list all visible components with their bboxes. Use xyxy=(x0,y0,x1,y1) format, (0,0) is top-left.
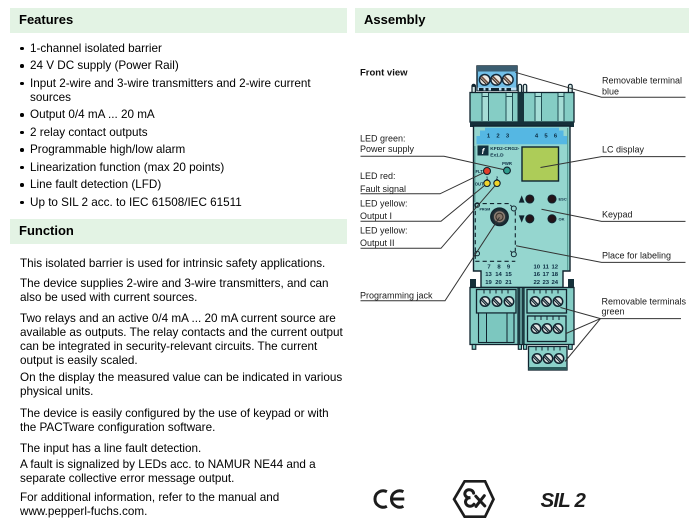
svg-text:LED yellow:: LED yellow: xyxy=(360,225,408,235)
svg-text:LED red:: LED red: xyxy=(360,171,396,181)
svg-text:Front view: Front view xyxy=(360,68,408,79)
svg-text:green: green xyxy=(602,306,625,316)
svg-text:22: 22 xyxy=(534,280,541,286)
svg-text:Place for labeling: Place for labeling xyxy=(602,250,671,260)
svg-text:Removable terminal: Removable terminal xyxy=(602,76,682,86)
svg-text:ESC: ESC xyxy=(559,197,567,202)
svg-text:Output I: Output I xyxy=(360,211,392,221)
svg-text:19: 19 xyxy=(485,280,492,286)
svg-text:Fault signal: Fault signal xyxy=(360,184,406,194)
svg-text:blue: blue xyxy=(602,86,619,96)
svg-text:Removable terminals: Removable terminals xyxy=(602,296,687,306)
svg-text:OK: OK xyxy=(559,216,565,221)
svg-text:LC display: LC display xyxy=(602,145,645,155)
svg-text:LED yellow:: LED yellow: xyxy=(360,199,408,209)
svg-text:20: 20 xyxy=(495,280,502,286)
svg-text:Power supply: Power supply xyxy=(360,144,415,154)
svg-text:OUT: OUT xyxy=(475,181,484,186)
svg-text:24: 24 xyxy=(552,280,559,286)
svg-text:SIL 2: SIL 2 xyxy=(541,489,587,512)
svg-text:PWR: PWR xyxy=(502,161,512,166)
svg-text:12: 12 xyxy=(552,264,559,270)
svg-text:23: 23 xyxy=(543,280,550,286)
svg-text:Ex1.D: Ex1.D xyxy=(490,153,504,159)
svg-text:10: 10 xyxy=(534,264,541,270)
svg-text:15: 15 xyxy=(505,272,512,278)
svg-text:LED green:: LED green: xyxy=(360,134,406,144)
svg-text:PRGM: PRGM xyxy=(480,208,491,212)
svg-text:18: 18 xyxy=(552,272,559,278)
svg-text:17: 17 xyxy=(543,272,550,278)
svg-text:21: 21 xyxy=(505,280,512,286)
svg-text:Output II: Output II xyxy=(360,238,395,248)
svg-text:Keypad: Keypad xyxy=(602,209,633,219)
svg-text:16: 16 xyxy=(534,272,541,278)
svg-text:11: 11 xyxy=(543,264,550,270)
svg-text:14: 14 xyxy=(495,272,502,278)
svg-text:Programming jack: Programming jack xyxy=(360,291,433,301)
svg-text:13: 13 xyxy=(485,272,492,278)
svg-text:KFD2-CRG2-: KFD2-CRG2- xyxy=(490,146,519,152)
